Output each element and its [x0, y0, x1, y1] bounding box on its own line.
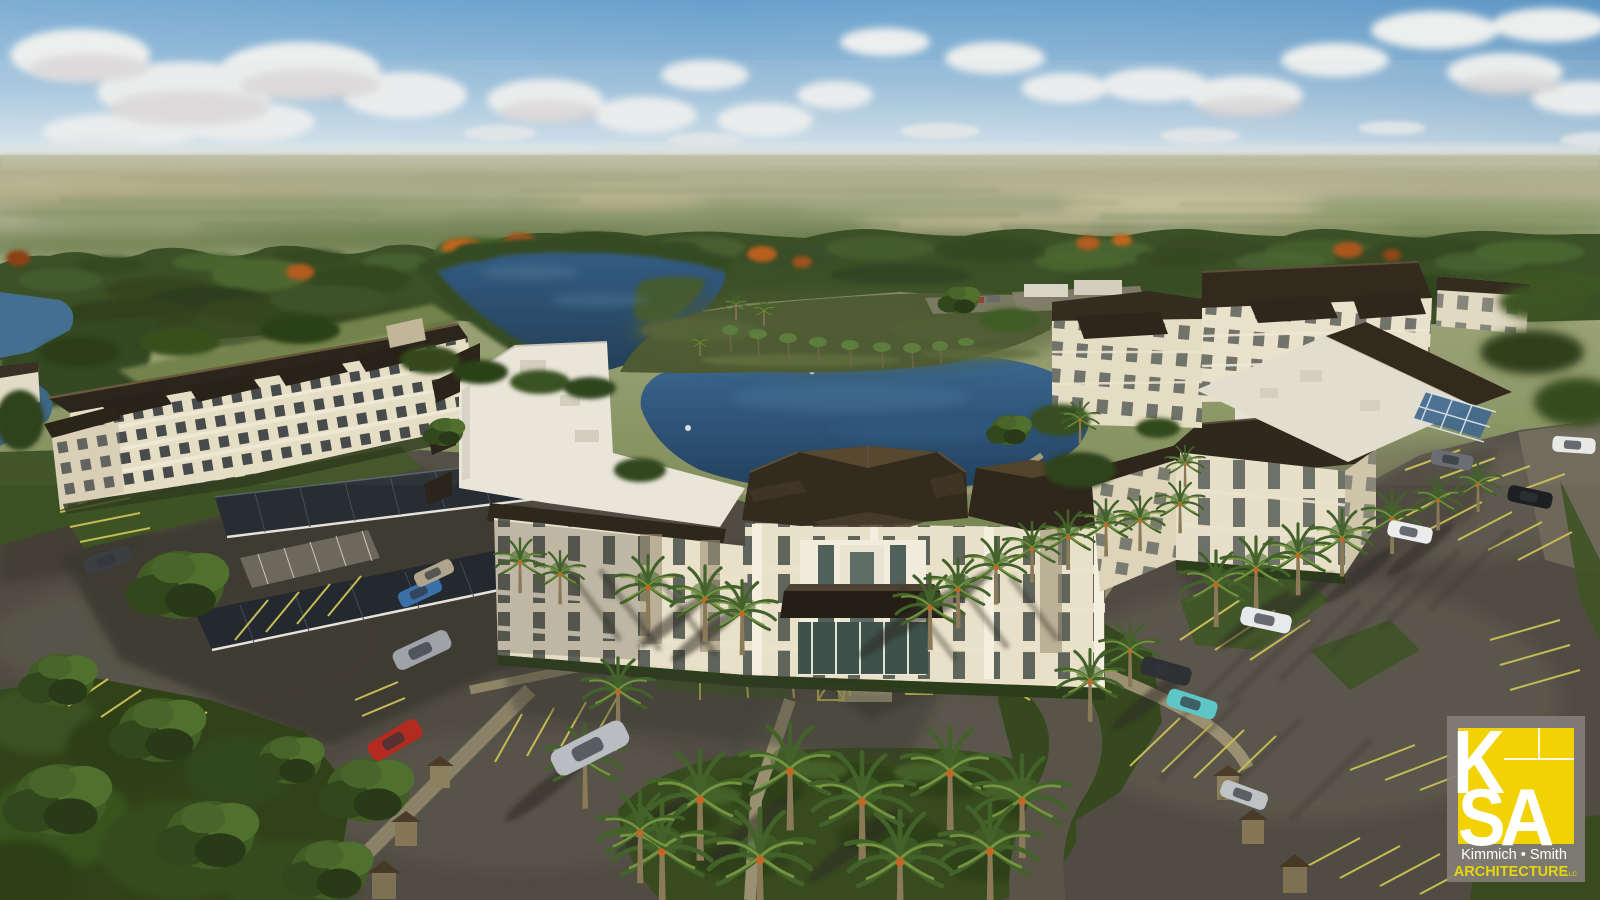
svg-text:LLC: LLC	[1565, 871, 1577, 878]
svg-text:Kimmich • Smith: Kimmich • Smith	[1461, 847, 1567, 863]
svg-text:ARCHITECTURE: ARCHITECTURE	[1454, 864, 1569, 880]
